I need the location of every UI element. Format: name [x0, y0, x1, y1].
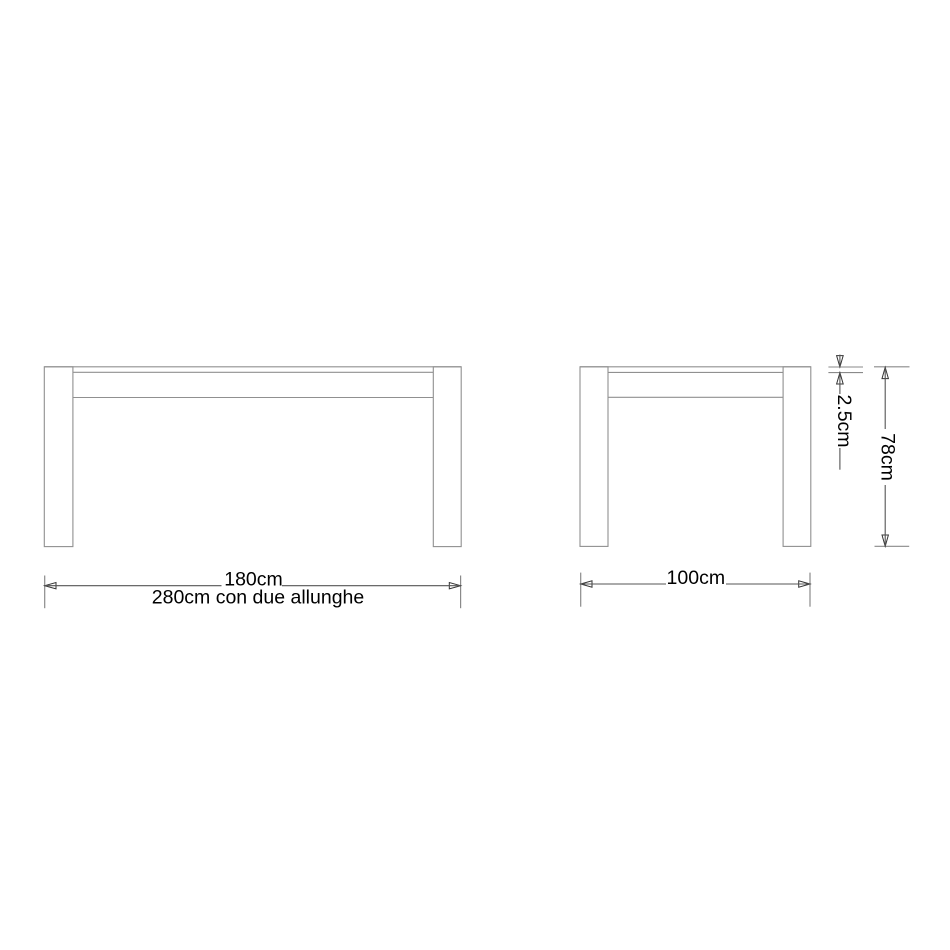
svg-text:2.5cm: 2.5cm: [833, 394, 855, 447]
svg-text:280cm con due allunghe: 280cm con due allunghe: [152, 586, 365, 608]
svg-text:100cm: 100cm: [667, 567, 726, 589]
svg-text:78cm: 78cm: [877, 433, 899, 481]
